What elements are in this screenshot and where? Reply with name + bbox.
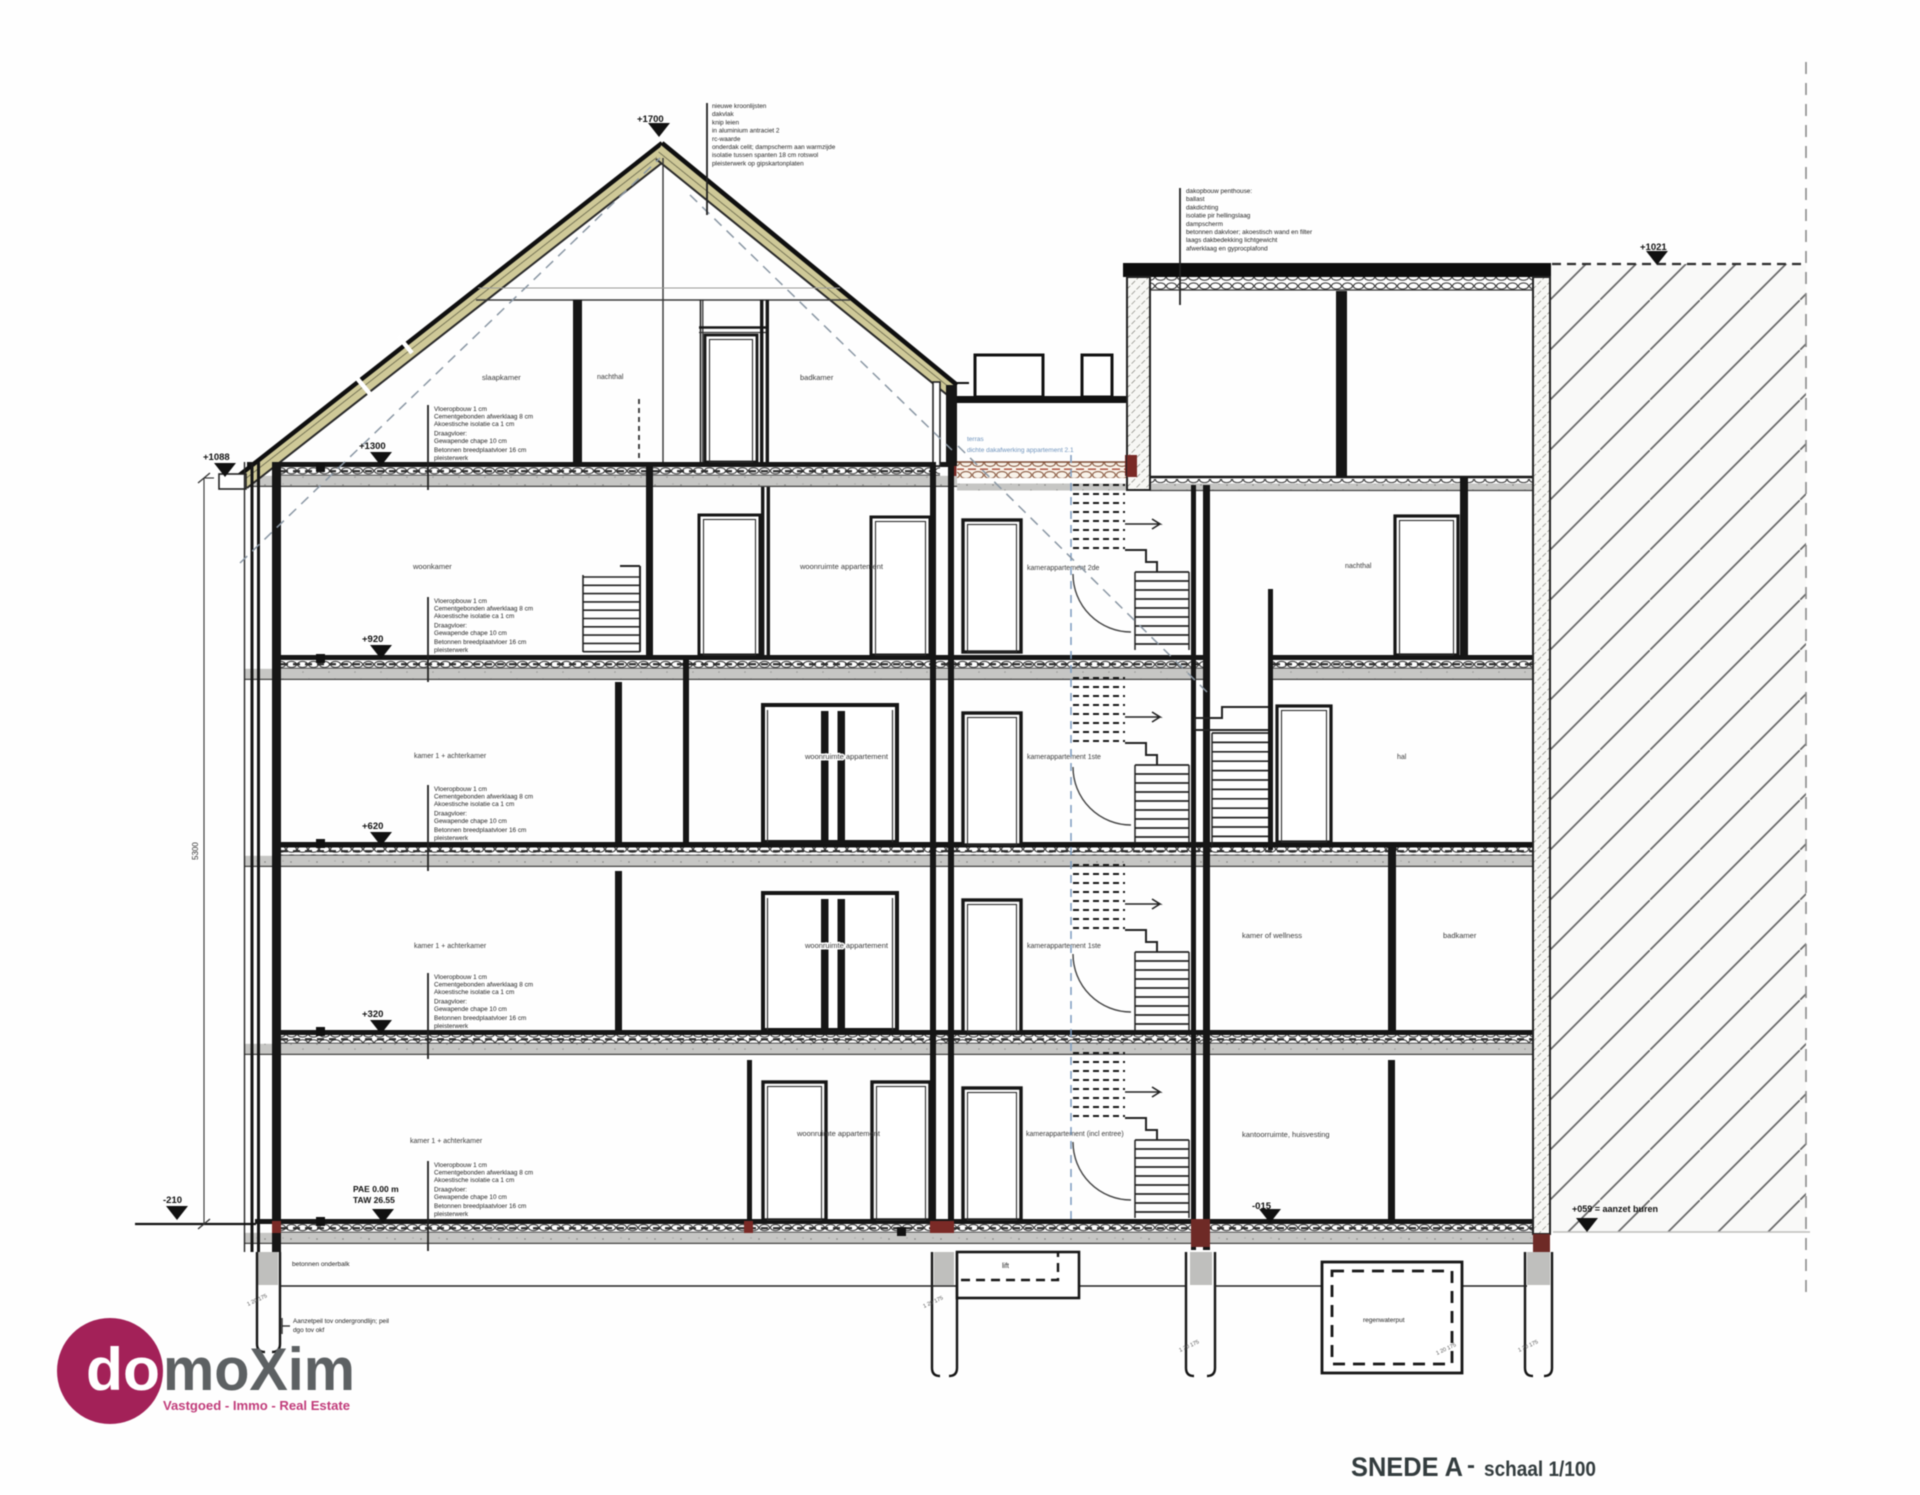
svg-text:Vloeropbouw 1 cm: Vloeropbouw 1 cm	[434, 406, 487, 413]
svg-text:regenwaterput: regenwaterput	[1363, 1317, 1405, 1324]
svg-text:woonruimte appartement: woonruimte appartement	[804, 752, 889, 761]
svg-text:Vloeropbouw 1 cm: Vloeropbouw 1 cm	[434, 598, 487, 605]
svg-text:woonruimte appartement: woonruimte appartement	[799, 562, 884, 571]
svg-text:kamerappartement (incl entree): kamerappartement (incl entree)	[1026, 1131, 1124, 1138]
svg-text:Akoestische isolatie ca 1 cm: Akoestische isolatie ca 1 cm	[434, 801, 514, 808]
svg-text:Cementgebonden afwerklaag 8 cm: Cementgebonden afwerklaag 8 cm	[434, 982, 533, 989]
svg-text:isolatie pir hellingslaag: isolatie pir hellingslaag	[1186, 213, 1251, 220]
svg-text:+1021: +1021	[1640, 242, 1667, 253]
svg-text:Cementgebonden afwerklaag 8 cm: Cementgebonden afwerklaag 8 cm	[434, 414, 533, 421]
svg-text:Betonnen breedplaatvloer 16 cm: Betonnen breedplaatvloer 16 cm	[434, 447, 526, 454]
svg-text:kamerappartement 2de: kamerappartement 2de	[1027, 565, 1099, 572]
svg-text:PAE 0.00 m: PAE 0.00 m	[353, 1184, 399, 1194]
svg-text:Gewapende chape 10 cm: Gewapende chape 10 cm	[434, 818, 507, 825]
svg-text:pleisterwerk: pleisterwerk	[434, 1023, 469, 1030]
svg-text:Gewapende chape 10 cm: Gewapende chape 10 cm	[434, 438, 507, 445]
svg-text:knip leien: knip leien	[712, 119, 739, 126]
svg-text:dakopbouw penthouse:: dakopbouw penthouse:	[1186, 188, 1252, 195]
svg-text:+1700: +1700	[637, 114, 664, 125]
svg-text:Akoestische isolatie ca 1 cm: Akoestische isolatie ca 1 cm	[434, 989, 514, 996]
svg-text:do: do	[86, 1336, 160, 1403]
svg-text:Draagvloer:: Draagvloer:	[434, 998, 467, 1005]
svg-text:Vloeropbouw 1 cm: Vloeropbouw 1 cm	[434, 1162, 487, 1169]
svg-text:Betonnen breedplaatvloer 16 cm: Betonnen breedplaatvloer 16 cm	[434, 827, 526, 834]
svg-text:Akoestische isolatie ca 1 cm: Akoestische isolatie ca 1 cm	[434, 1177, 514, 1184]
svg-text:isolatie tussen spanten 18 cm: isolatie tussen spanten 18 cm rotswol	[712, 152, 818, 159]
svg-text:Gewapende chape 10 cm: Gewapende chape 10 cm	[434, 630, 507, 637]
svg-text:hal: hal	[1397, 754, 1407, 761]
svg-text:dgo tov okf: dgo tov okf	[293, 1327, 324, 1334]
svg-text:+059 = aanzet buren: +059 = aanzet buren	[1572, 1204, 1658, 1214]
svg-text:kantoorruimte, huisvesting: kantoorruimte, huisvesting	[1242, 1130, 1330, 1139]
svg-text:5300: 5300	[191, 842, 200, 860]
svg-text:rc-waarde: rc-waarde	[712, 136, 741, 143]
svg-text:Betonnen breedplaatvloer 16 cm: Betonnen breedplaatvloer 16 cm	[434, 639, 526, 646]
svg-text:Gewapende chape 10 cm: Gewapende chape 10 cm	[434, 1194, 507, 1201]
svg-text:+1088: +1088	[203, 452, 230, 463]
svg-text:Draagvloer:: Draagvloer:	[434, 1186, 467, 1193]
svg-text:+620: +620	[362, 821, 383, 832]
svg-text:badkamer: badkamer	[800, 373, 834, 382]
svg-text:Draagvloer:: Draagvloer:	[434, 430, 467, 437]
svg-text:Cementgebonden afwerklaag 8 cm: Cementgebonden afwerklaag 8 cm	[434, 794, 533, 801]
svg-text:slaapkamer: slaapkamer	[482, 373, 521, 382]
svg-text:Cementgebonden afwerklaag 8 cm: Cementgebonden afwerklaag 8 cm	[434, 1170, 533, 1177]
svg-text:nachthal: nachthal	[597, 374, 624, 381]
svg-text:Draagvloer:: Draagvloer:	[434, 810, 467, 817]
svg-text:pleisterwerk: pleisterwerk	[434, 835, 469, 842]
svg-text:pleisterwerk op gipskartonplat: pleisterwerk op gipskartonplaten	[712, 160, 804, 167]
svg-text:pleisterwerk: pleisterwerk	[434, 647, 469, 654]
svg-text:SNEDE A: SNEDE A	[1351, 1452, 1463, 1482]
svg-text:dakdichting: dakdichting	[1186, 204, 1219, 211]
svg-text:dakvlak: dakvlak	[712, 111, 734, 118]
svg-text:Akoestische isolatie ca 1 cm: Akoestische isolatie ca 1 cm	[434, 421, 514, 428]
svg-text:kamerappartement 1ste: kamerappartement 1ste	[1027, 943, 1101, 950]
svg-text:+1300: +1300	[359, 441, 386, 452]
svg-text:Gewapende chape 10 cm: Gewapende chape 10 cm	[434, 1006, 507, 1013]
svg-text:kamer of wellness: kamer of wellness	[1242, 931, 1302, 940]
svg-text:-210: -210	[163, 1195, 182, 1206]
svg-text:Vloeropbouw 1 cm: Vloeropbouw 1 cm	[434, 974, 487, 981]
svg-text:Vloeropbouw 1 cm: Vloeropbouw 1 cm	[434, 786, 487, 793]
svg-text:afwerklaag en gyprocplafond: afwerklaag en gyprocplafond	[1186, 245, 1268, 252]
svg-text:woonruimte appartement: woonruimte appartement	[804, 941, 889, 950]
svg-text:kamerappartement 1ste: kamerappartement 1ste	[1027, 754, 1101, 761]
svg-text:betonnen dakvloer; akoestisch: betonnen dakvloer; akoestisch wand en fi…	[1186, 229, 1313, 236]
svg-text:+320: +320	[362, 1009, 383, 1020]
svg-text:kamer 1 + achterkamer: kamer 1 + achterkamer	[410, 1138, 483, 1145]
svg-text:Betonnen breedplaatvloer 16 cm: Betonnen breedplaatvloer 16 cm	[434, 1203, 526, 1210]
svg-text:laags dakbedekking lichtgewich: laags dakbedekking lichtgewicht	[1186, 237, 1278, 244]
svg-text:dampscherm: dampscherm	[1186, 221, 1223, 228]
svg-text:TAW 26.55: TAW 26.55	[353, 1195, 395, 1205]
svg-text:pleisterwerk: pleisterwerk	[434, 1211, 469, 1218]
svg-text:nieuwe kroonlijsten: nieuwe kroonlijsten	[712, 103, 767, 110]
svg-text:dichte dakafwerking appartemen: dichte dakafwerking appartement 2.1	[967, 447, 1074, 454]
svg-text:pleisterwerk: pleisterwerk	[434, 455, 469, 462]
svg-text:-015: -015	[1252, 1201, 1272, 1212]
svg-text:Cementgebonden afwerklaag 8 cm: Cementgebonden afwerklaag 8 cm	[434, 606, 533, 613]
svg-text:+920: +920	[362, 634, 383, 645]
svg-text:lift: lift	[1002, 1263, 1009, 1270]
svg-text:kamer 1 + achterkamer: kamer 1 + achterkamer	[414, 753, 487, 760]
svg-text:kamer 1 + achterkamer: kamer 1 + achterkamer	[414, 943, 487, 950]
svg-text:Vastgoed - Immo - Real Estate: Vastgoed - Immo - Real Estate	[163, 1398, 350, 1413]
svg-text:nachthal: nachthal	[1345, 563, 1372, 570]
svg-text:betonnen onderbalk: betonnen onderbalk	[292, 1261, 350, 1268]
svg-text:badkamer: badkamer	[1443, 931, 1477, 940]
svg-text:woonkamer: woonkamer	[412, 562, 452, 571]
svg-text:Draagvloer:: Draagvloer:	[434, 622, 467, 629]
svg-text:terras: terras	[967, 436, 984, 443]
svg-text:Betonnen breedplaatvloer 16 cm: Betonnen breedplaatvloer 16 cm	[434, 1015, 526, 1022]
svg-text:schaal 1/100: schaal 1/100	[1484, 1458, 1596, 1481]
svg-text:-: -	[1467, 1452, 1475, 1479]
svg-text:onderdak celit; dampscherm aan: onderdak celit; dampscherm aan warmzijde	[712, 144, 836, 151]
svg-text:Akoestische isolatie ca 1 cm: Akoestische isolatie ca 1 cm	[434, 613, 514, 620]
svg-text:Aanzetpeil tov ondergrondlijn;: Aanzetpeil tov ondergrondlijn; peil	[293, 1318, 389, 1325]
svg-text:moXim: moXim	[163, 1336, 355, 1403]
svg-text:in aluminium antraciet 2: in aluminium antraciet 2	[712, 128, 780, 135]
svg-text:ballast: ballast	[1186, 196, 1205, 203]
svg-text:woonruimte appartement: woonruimte appartement	[796, 1129, 881, 1138]
